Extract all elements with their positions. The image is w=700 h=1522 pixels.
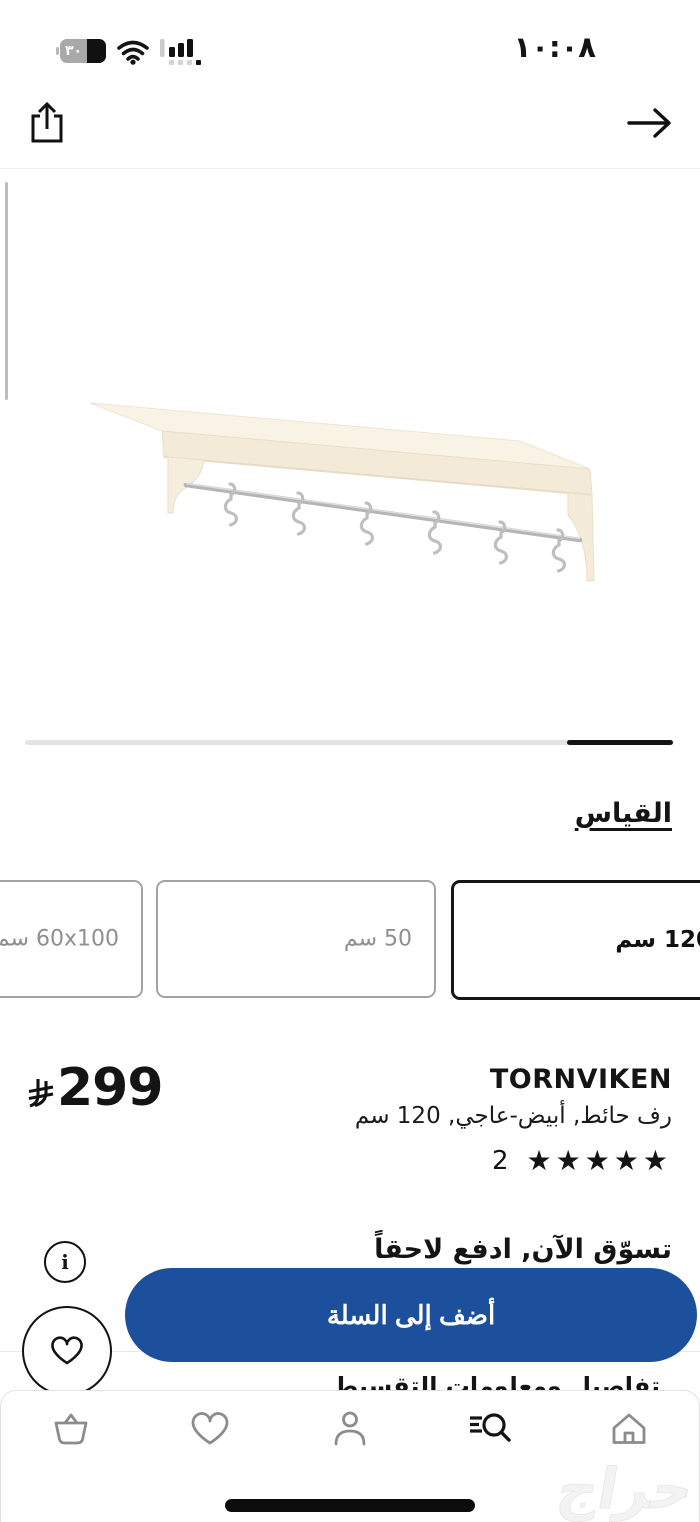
status-bar: ٣٠ ١٠:٠٨ bbox=[0, 22, 700, 78]
rating-row[interactable]: ★★★★★ 2 bbox=[492, 1144, 672, 1177]
info-button[interactable]: i bbox=[44, 1241, 86, 1283]
share-icon bbox=[28, 101, 66, 145]
status-time: ١٠:٠٨ bbox=[514, 30, 596, 64]
info-icon: i bbox=[61, 1252, 69, 1272]
product-image-carousel[interactable] bbox=[0, 169, 700, 717]
nav-cart[interactable] bbox=[1, 1403, 141, 1455]
nav-profile[interactable] bbox=[280, 1403, 420, 1455]
nav-home[interactable] bbox=[559, 1403, 699, 1455]
size-option-label: 60x100 سم bbox=[0, 927, 119, 952]
bnpl-heading: تسوّق الآن, ادفع لاحقاً bbox=[374, 1234, 672, 1265]
home-indicator[interactable] bbox=[225, 1499, 475, 1512]
size-options-row: 60x100 سم 50 سم 120 سم bbox=[0, 878, 700, 1000]
battery-icon: ٣٠ bbox=[56, 38, 106, 64]
product-name: TORNVIKEN bbox=[355, 1064, 672, 1095]
bnpl-details-link[interactable]: تفاصيل ومعلومات التقسيط bbox=[333, 1372, 660, 1392]
size-option-60x100[interactable]: 60x100 سم bbox=[0, 880, 143, 998]
forward-arrow-button[interactable] bbox=[626, 106, 674, 140]
favorite-button[interactable] bbox=[22, 1306, 112, 1396]
person-icon bbox=[332, 1410, 368, 1448]
wifi-icon bbox=[116, 38, 150, 65]
price: 299 bbox=[28, 1062, 163, 1114]
home-icon bbox=[609, 1411, 649, 1447]
bottom-navigation: حراج bbox=[0, 1390, 700, 1522]
size-option-label: 50 سم bbox=[344, 927, 412, 952]
carousel-scroll-track bbox=[25, 740, 673, 745]
heart-icon bbox=[49, 1335, 85, 1367]
product-image-wall-shelf bbox=[80, 345, 610, 585]
nav-search-active[interactable] bbox=[420, 1403, 560, 1455]
share-button[interactable] bbox=[28, 101, 66, 145]
arrow-right-icon bbox=[626, 106, 674, 140]
nav-wishlist[interactable] bbox=[141, 1403, 281, 1455]
price-value: 299 bbox=[57, 1062, 163, 1114]
watermark: حراج bbox=[553, 1457, 699, 1522]
adjacent-slide-edge bbox=[5, 182, 8, 400]
carousel-scroll-thumb bbox=[567, 740, 673, 745]
rating-stars: ★★★★★ bbox=[526, 1144, 672, 1177]
size-option-50[interactable]: 50 سم bbox=[156, 880, 436, 998]
size-option-label: 120 سم bbox=[615, 927, 700, 953]
size-section-title: القياس bbox=[575, 798, 672, 829]
search-icon bbox=[468, 1411, 512, 1447]
product-info: TORNVIKEN رف حائط, أبيض-عاجي, 120 سم bbox=[355, 1064, 672, 1129]
saudi-riyal-symbol-icon bbox=[28, 1077, 54, 1109]
size-option-120-selected[interactable]: 120 سم bbox=[451, 880, 700, 1000]
product-description: رف حائط, أبيض-عاجي, 120 سم bbox=[355, 1103, 672, 1129]
rating-count: 2 bbox=[492, 1146, 509, 1176]
basket-icon bbox=[50, 1412, 92, 1446]
add-to-cart-label: أضف إلى السلة bbox=[327, 1300, 495, 1331]
heart-icon bbox=[189, 1411, 231, 1447]
add-to-cart-button[interactable]: أضف إلى السلة bbox=[125, 1268, 697, 1362]
cellular-signal-icon bbox=[160, 36, 204, 66]
battery-percent: ٣٠ bbox=[60, 40, 87, 62]
